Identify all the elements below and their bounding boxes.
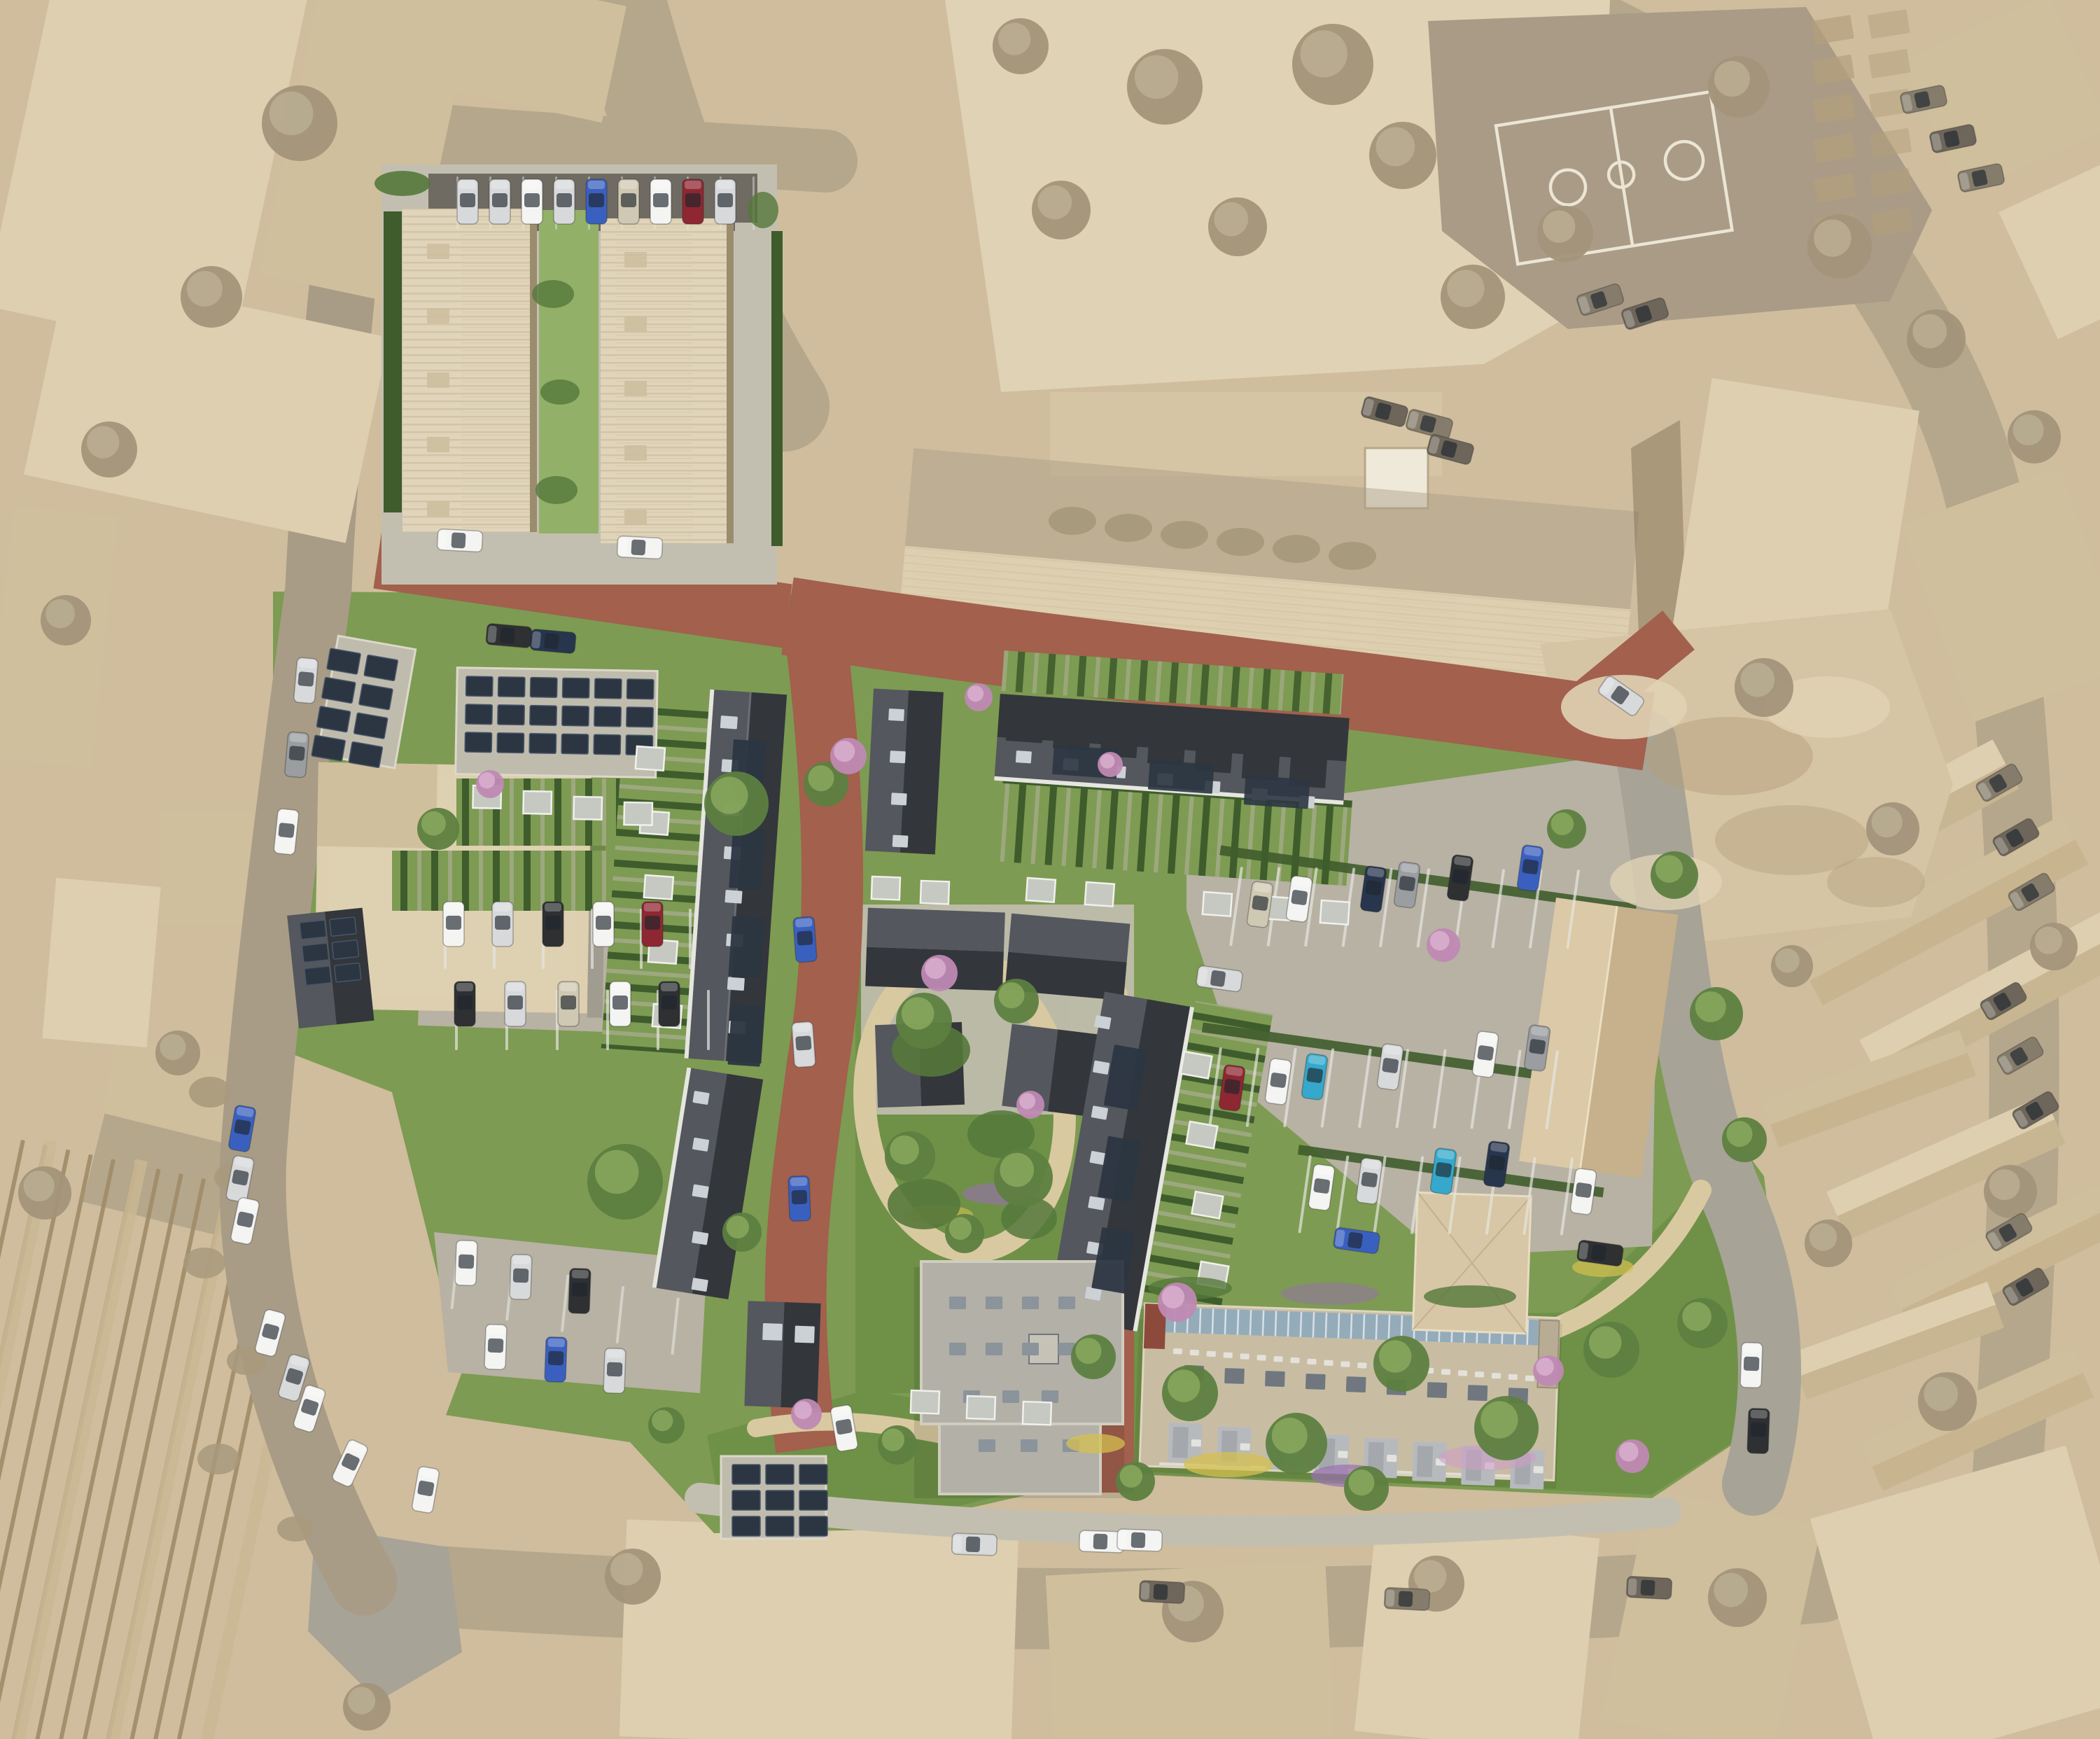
tree xyxy=(648,1407,685,1444)
context-tree xyxy=(1907,309,1966,368)
car xyxy=(642,902,663,947)
car xyxy=(484,1324,507,1369)
tree xyxy=(417,808,459,850)
car xyxy=(284,732,309,778)
garden-shed xyxy=(1023,1402,1051,1425)
tree xyxy=(1162,1365,1218,1421)
car xyxy=(510,1254,532,1299)
car xyxy=(617,536,662,559)
car xyxy=(715,179,736,224)
car xyxy=(545,1336,567,1382)
shrub-patch xyxy=(540,379,580,405)
context-tree xyxy=(1866,802,1919,855)
blossom-tree xyxy=(1427,928,1460,962)
tree xyxy=(1116,1462,1155,1501)
garden-shed xyxy=(644,875,673,900)
context-tree xyxy=(993,18,1049,74)
car xyxy=(659,982,680,1026)
tree xyxy=(1344,1466,1389,1511)
car xyxy=(650,179,671,224)
car xyxy=(1139,1580,1184,1603)
tree xyxy=(878,1425,917,1465)
shrub-patch xyxy=(1049,507,1096,535)
blossom-tree xyxy=(965,683,993,711)
tree xyxy=(1690,987,1743,1040)
context-tree xyxy=(343,1683,391,1731)
garden-shed xyxy=(871,877,900,900)
shrub-patch xyxy=(1105,514,1152,542)
blossom-tree xyxy=(791,1399,822,1430)
context-tree xyxy=(1918,1372,1977,1431)
tree xyxy=(1722,1117,1767,1162)
garden-shed xyxy=(1186,1122,1217,1148)
shrub-patch xyxy=(1273,535,1320,563)
blossom-tree xyxy=(921,955,958,991)
car xyxy=(542,902,563,947)
garden-shed xyxy=(624,802,652,825)
context-tree xyxy=(1537,206,1593,262)
tree xyxy=(1474,1396,1539,1460)
context-tree xyxy=(1292,24,1373,105)
context-tree xyxy=(1208,197,1267,256)
context-tree xyxy=(1369,122,1436,189)
car xyxy=(1116,1529,1162,1551)
tree xyxy=(1677,1298,1728,1348)
car xyxy=(558,982,579,1026)
car xyxy=(443,902,464,947)
car xyxy=(568,1268,591,1313)
shrub-patch xyxy=(535,476,577,504)
context-tree xyxy=(181,266,242,328)
car xyxy=(618,179,639,224)
garden-shed xyxy=(1026,878,1056,902)
shrub-patch xyxy=(1161,521,1208,549)
shrub-patch xyxy=(1827,857,1925,907)
car xyxy=(554,179,575,224)
blossom-tree xyxy=(1158,1283,1197,1322)
car xyxy=(788,1175,811,1221)
timber-slab-2 xyxy=(601,218,734,543)
blossom-tree xyxy=(1533,1355,1564,1386)
aerial-masterplan-rendering xyxy=(0,0,2100,1739)
context-tree xyxy=(1032,181,1091,239)
tree xyxy=(1266,1413,1327,1474)
tree xyxy=(994,1148,1053,1207)
car xyxy=(486,623,532,648)
tree xyxy=(945,1214,984,1253)
shrub-patch xyxy=(189,1077,231,1108)
shrub-patch xyxy=(1329,542,1376,570)
context-tree xyxy=(1771,945,1813,987)
tree xyxy=(1547,809,1586,848)
car xyxy=(457,179,478,224)
car xyxy=(293,657,318,704)
tree xyxy=(1583,1322,1639,1378)
car xyxy=(1384,1587,1429,1610)
garden-shed xyxy=(1180,1052,1212,1078)
context-tree xyxy=(1805,1220,1852,1267)
shrub-patch xyxy=(1184,1452,1273,1477)
garden-shed xyxy=(920,881,949,904)
tree xyxy=(722,1213,762,1252)
shrub-patch xyxy=(1066,1434,1125,1453)
shrub-patch xyxy=(183,1248,225,1278)
car xyxy=(1740,1342,1763,1388)
context-tree xyxy=(2030,923,2078,970)
tree xyxy=(587,1144,663,1220)
context-tree xyxy=(262,85,337,161)
shrub-patch xyxy=(277,1516,314,1542)
context-tree xyxy=(1984,1165,2037,1218)
context-tree xyxy=(2008,410,2061,463)
building-h-house xyxy=(744,1301,820,1409)
context-tree xyxy=(1708,56,1770,118)
blossom-tree xyxy=(1098,752,1123,777)
blossom-tree xyxy=(476,770,504,798)
h2-solar-array xyxy=(732,1465,827,1536)
shrub-patch xyxy=(374,171,430,196)
i-roof-furniture-4 xyxy=(979,1439,1079,1452)
shrub-patch xyxy=(197,1444,239,1474)
car xyxy=(274,809,300,855)
garden-shed xyxy=(1203,892,1232,916)
blossom-tree xyxy=(1016,1091,1044,1119)
garden-shed xyxy=(573,797,602,820)
terrace-row-d xyxy=(865,689,944,855)
context-tree xyxy=(1735,658,1793,717)
shrub-patch xyxy=(748,192,778,228)
context-tree xyxy=(1441,265,1505,329)
garden-shed xyxy=(1085,882,1114,907)
car xyxy=(455,1240,477,1285)
car xyxy=(792,1021,815,1068)
context-tree xyxy=(1708,1568,1767,1627)
tree xyxy=(1071,1334,1116,1379)
central-park-tail xyxy=(855,1253,922,1393)
car xyxy=(505,982,526,1026)
garden-shed xyxy=(911,1390,939,1413)
shrub-patch xyxy=(1217,528,1264,556)
garden-shed xyxy=(523,791,552,814)
garden-shed xyxy=(1320,900,1350,925)
timber-slab-1 xyxy=(402,209,537,532)
context-tree xyxy=(1807,214,1872,279)
tree xyxy=(704,771,769,836)
car xyxy=(454,982,475,1026)
car xyxy=(951,1533,997,1556)
garden-shed xyxy=(636,746,665,771)
car xyxy=(586,179,607,224)
car xyxy=(603,1348,626,1393)
tree xyxy=(885,1131,935,1182)
car xyxy=(492,902,513,947)
garden-shed xyxy=(967,1396,995,1419)
car xyxy=(1626,1576,1672,1599)
tree xyxy=(1373,1336,1429,1392)
car xyxy=(610,982,631,1026)
context-tree xyxy=(155,1031,200,1075)
context-tree xyxy=(1127,49,1203,125)
car xyxy=(530,629,576,653)
car xyxy=(437,529,482,552)
shrub-patch xyxy=(532,280,574,308)
shrub-patch xyxy=(1281,1283,1379,1305)
car xyxy=(1747,1408,1770,1453)
car xyxy=(489,179,510,224)
tree xyxy=(1651,851,1698,899)
car xyxy=(682,179,703,224)
car xyxy=(593,902,614,947)
car xyxy=(793,916,817,963)
context-tree xyxy=(18,1166,71,1220)
pavilion-l xyxy=(1413,1192,1531,1334)
shrub-patch xyxy=(1424,1285,1516,1308)
tree xyxy=(994,979,1039,1024)
tree xyxy=(896,993,952,1049)
garden-shed xyxy=(1191,1192,1223,1218)
blossom-tree xyxy=(830,738,867,774)
context-tree xyxy=(605,1549,661,1605)
car xyxy=(521,179,542,224)
context-tree xyxy=(41,595,91,645)
context-tree xyxy=(81,421,137,477)
blossom-tree xyxy=(1616,1439,1649,1473)
